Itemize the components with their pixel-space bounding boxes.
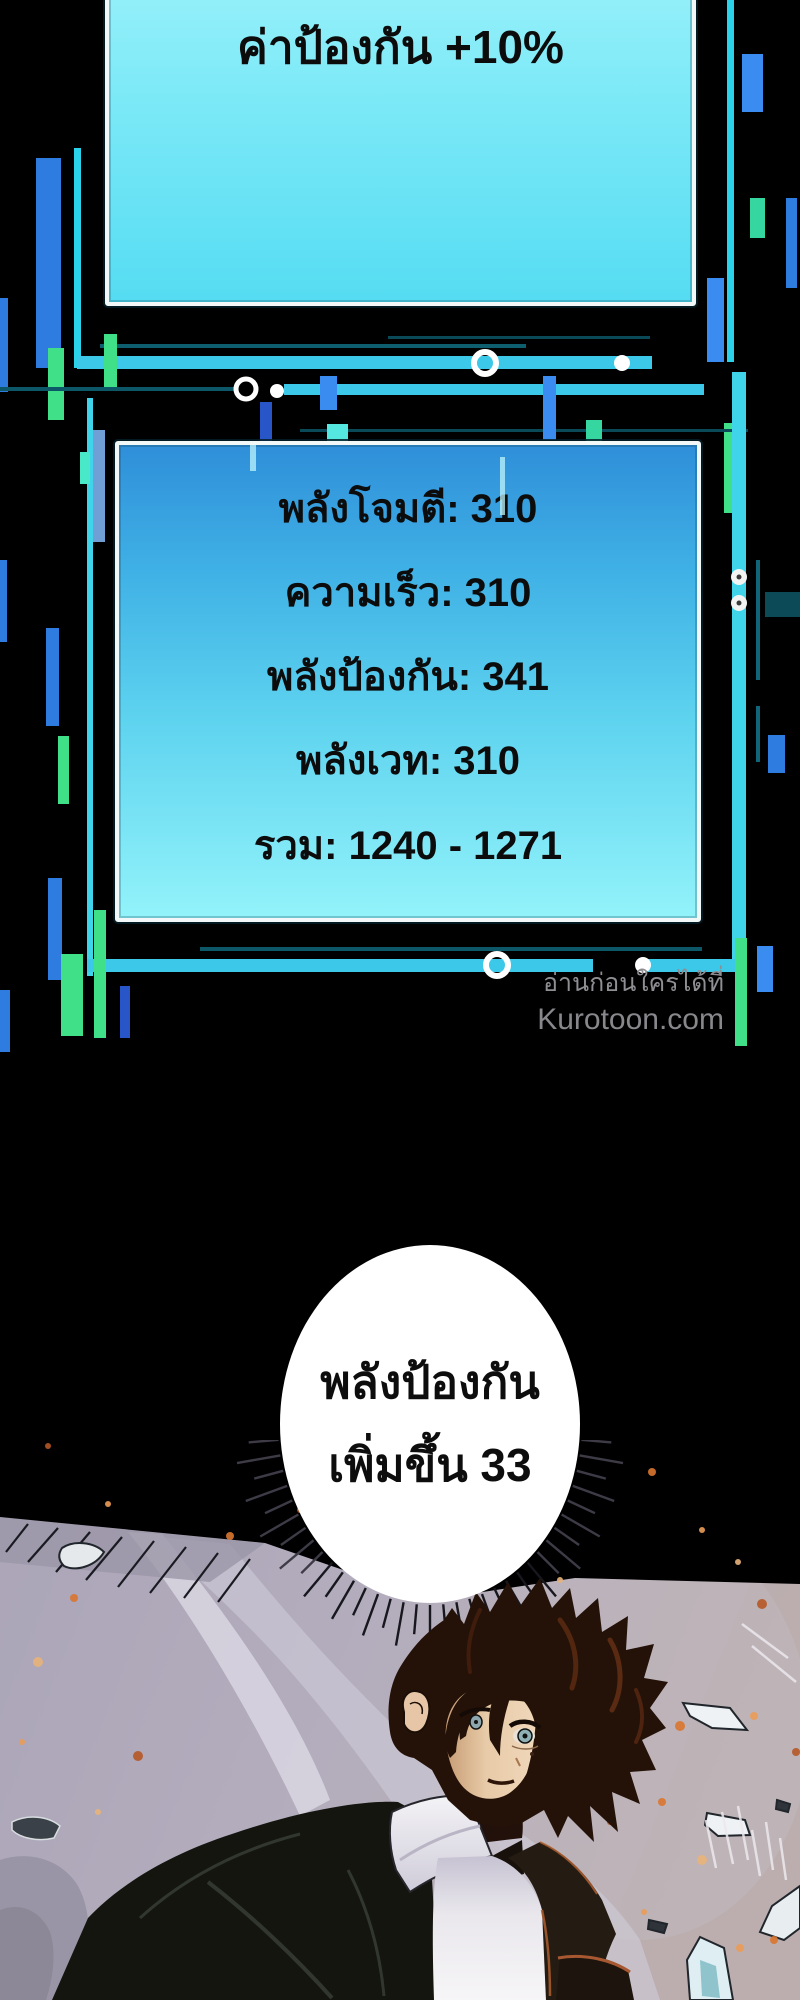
buff-status-panel: ค่าป้องกัน +10% — [105, 0, 696, 306]
glitch-sliver — [500, 457, 505, 515]
buff-text: ค่าป้องกัน +10% — [109, 12, 692, 82]
bubble-line2: เพิ่มขึ้น 33 — [328, 1429, 531, 1502]
watermark: อ่านก่อนใครได้ที่ Kurotoon.com — [537, 966, 724, 1040]
circuit-bar — [77, 356, 652, 369]
stat-defense: พลังป้องกัน: 341 — [119, 649, 697, 705]
ear — [403, 1691, 429, 1732]
webtoon-page: ค่าป้องกัน +10% พลังโจมตี: 310 ความเร็ว:… — [0, 0, 800, 2000]
watermark-line2: Kurotoon.com — [537, 1000, 724, 1040]
watermark-line1: อ่านก่อนใครได้ที่ — [537, 966, 724, 1000]
stat-speed: ความเร็ว: 310 — [119, 565, 697, 621]
bubble-line1: พลังป้องกัน — [320, 1346, 540, 1419]
stat-magic: พลังเวท: 310 — [119, 733, 697, 789]
circuit-node-dot — [614, 355, 630, 371]
frame-line — [388, 336, 650, 339]
stat-attack: พลังโจมตี: 310 — [119, 481, 697, 537]
stat-total: รวม: 1240 - 1271 — [119, 818, 697, 874]
frame-line — [727, 0, 734, 362]
glitch-sliver — [250, 445, 256, 471]
frame-line — [100, 344, 526, 348]
frame-line — [74, 148, 81, 368]
speech-bubble: พลังป้องกัน เพิ่มขึ้น 33 — [280, 1245, 580, 1603]
stats-status-panel: พลังโจมตี: 310 ความเร็ว: 310 พลังป้องกัน… — [115, 441, 701, 922]
